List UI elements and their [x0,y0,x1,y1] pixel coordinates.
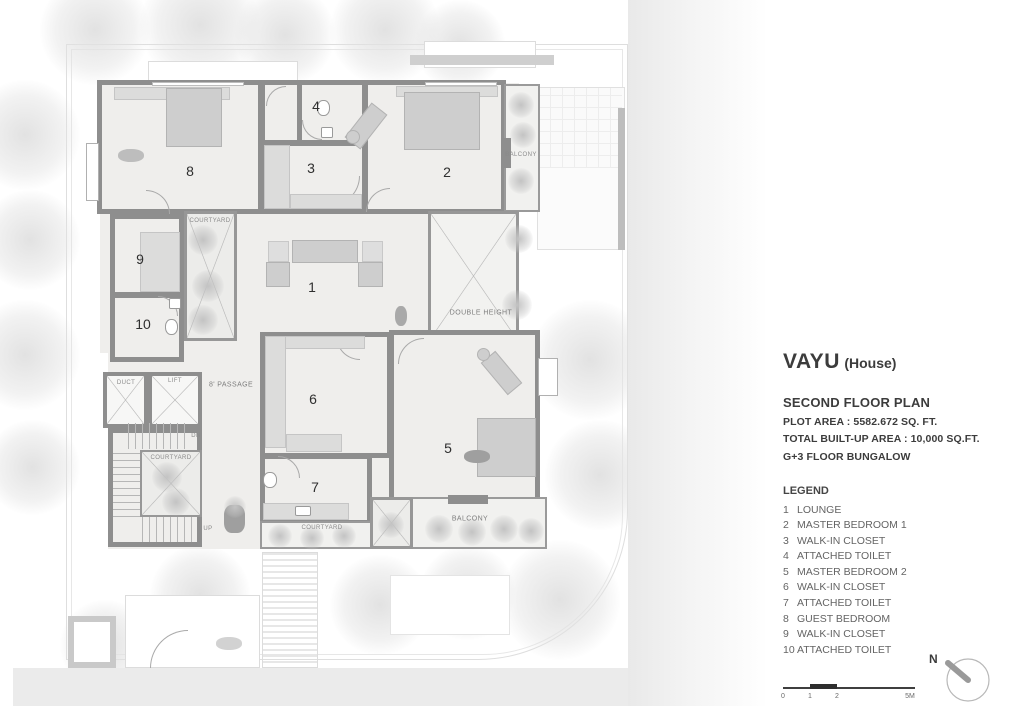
legend-item: 4ATTACHED TOILET [783,549,1018,565]
legend-num: 1 [783,503,797,519]
label-dn: DN [191,433,200,439]
room-number-4: 4 [312,98,320,114]
toilet [263,472,277,488]
room-number-9: 9 [136,251,144,267]
legend-item: 5MASTER BEDROOM 2 [783,565,1018,581]
bed-guest [166,88,222,147]
plant [224,496,246,518]
ground-floor-outline [390,575,510,635]
bed-master-2 [477,418,536,477]
sink [321,127,333,138]
room-number-3: 3 [307,160,315,176]
legend-item: 3WALK-IN CLOSET [783,534,1018,550]
person-on-bed [464,450,490,463]
terrace-wall [618,108,625,250]
plant [192,270,224,302]
plant [510,122,536,148]
legend-title: LEGEND [783,485,1018,497]
bird-silhouette [118,149,144,162]
legend-label: MASTER BEDROOM 2 [797,566,907,578]
label-up: UP [203,526,212,532]
legend-item: 1LOUNGE [783,503,1018,519]
label-duct: DUCT [117,380,135,386]
label-courtyard-top: COURTYARD [189,218,230,224]
window-bay-left [86,143,99,201]
built-up-line: TOTAL BUILT-UP AREA : 10,000 SQ.FT. [783,433,1018,445]
window-bay-right [538,358,558,396]
legend-label: ATTACHED TOILET [797,597,891,609]
floors-line: G+3 FLOOR BUNGALOW [783,451,1018,463]
bed-master-1 [404,92,480,150]
legend-num: 5 [783,565,797,581]
stool [346,130,360,144]
sink [169,298,181,309]
project-title-suffix: (House) [844,355,896,371]
legend-num: 7 [783,596,797,612]
page-fold-gradient [628,0,768,706]
planter-below [68,616,116,668]
room-number-6: 6 [309,391,317,407]
room-number-1: 1 [308,279,316,295]
tree [500,540,620,660]
plant [508,92,534,118]
label-courtyard-stairs: COURTYARD [150,455,191,461]
plant [505,225,533,253]
legend-label: ATTACHED TOILET [797,644,891,656]
plant [518,518,544,544]
compass-needle [948,663,968,680]
plant [425,515,453,543]
legend-item: 6WALK-IN CLOSET [783,580,1018,596]
plant [188,305,218,335]
plant [490,515,518,543]
compass-icon [934,650,996,708]
legend-num: 8 [783,612,797,628]
scale-bar-line [783,687,915,689]
wardrobe [286,434,342,452]
legend-num: 4 [783,549,797,565]
room-number-5: 5 [444,440,452,456]
ground-floor-outline [125,595,260,668]
legend-item: 9WALK-IN CLOSET [783,627,1018,643]
window-top [152,82,244,86]
roof-beam [410,55,554,65]
legend-list: 1LOUNGE 2MASTER BEDROOM 1 3WALK-IN CLOSE… [783,503,1018,659]
room-number-8: 8 [186,163,194,179]
legend-num: 3 [783,534,797,550]
cat-silhouette [395,306,407,326]
plant [508,168,534,194]
legend-item: 8GUEST BEDROOM [783,612,1018,628]
legend-label: GUEST BEDROOM [797,613,890,625]
legend-num: 6 [783,580,797,596]
double-height-void [428,211,519,341]
stairs-top-flight [128,423,188,449]
legend-num: 10 [783,643,797,659]
floor-plan-sheet: 8 4 3 2 9 1 10 6 5 7 BALCONY COURTYARD D… [0,0,1024,723]
label-lift: LIFT [168,378,182,384]
room-number-2: 2 [443,164,451,180]
road-margin [13,668,658,706]
dog-silhouette [216,637,242,650]
armchair [266,262,290,287]
legend-label: MASTER BEDROOM 1 [797,519,907,531]
label-courtyard-bottom: COURTYARD [301,525,342,531]
legend-num: 9 [783,627,797,643]
label-balcony-right: BALCONY [505,152,536,158]
room-number-10: 10 [135,316,151,332]
sink [295,506,311,516]
stairs-bottom-flight [142,517,194,542]
legend-label: LOUNGE [797,504,841,516]
legend-label: WALK-IN CLOSET [797,535,885,547]
project-title-main: VAYU [783,350,840,373]
legend-item: 2MASTER BEDROOM 1 [783,518,1018,534]
wardrobe [140,232,180,292]
info-panel: VAYU (House) SECOND FLOOR PLAN PLOT AREA… [783,350,1018,658]
side-table [362,241,383,262]
scale-tick-0: 0 [781,693,785,700]
north-label: N [929,652,938,666]
wardrobe [265,336,286,448]
plant [162,488,190,516]
room-number-7: 7 [311,479,319,495]
scale-bar-segment [810,684,837,689]
plant [188,225,218,255]
wardrobe [290,194,362,209]
label-passage: 8' PASSAGE [209,382,253,389]
balcony-bottom-door [448,495,488,504]
plant [378,512,404,538]
plot-area-line: PLOT AREA : 5582.672 SQ. FT. [783,416,1018,428]
scale-tick-1: 1 [808,693,812,700]
project-title: VAYU (House) [783,350,1018,374]
plant [268,524,292,548]
legend-num: 2 [783,518,797,534]
label-balcony-bottom: BALCONY [452,516,488,523]
armchair [358,262,383,287]
deck-below [262,552,318,668]
sofa [292,240,358,263]
legend-label: WALK-IN CLOSET [797,628,885,640]
toilet [165,319,178,335]
legend-label: WALK-IN CLOSET [797,581,885,593]
scale-tick-5m: 5M [905,693,915,700]
terrace-grid [538,88,622,168]
legend-item: 7ATTACHED TOILET [783,596,1018,612]
stairs-left-flight [113,450,140,517]
plan-name: SECOND FLOOR PLAN [783,395,1018,410]
legend-label: ATTACHED TOILET [797,550,891,562]
stool [477,348,490,361]
scale-tick-2: 2 [835,693,839,700]
side-table [268,241,289,262]
label-double-height: DOUBLE HEIGHT [450,310,512,317]
wardrobe [264,145,290,209]
